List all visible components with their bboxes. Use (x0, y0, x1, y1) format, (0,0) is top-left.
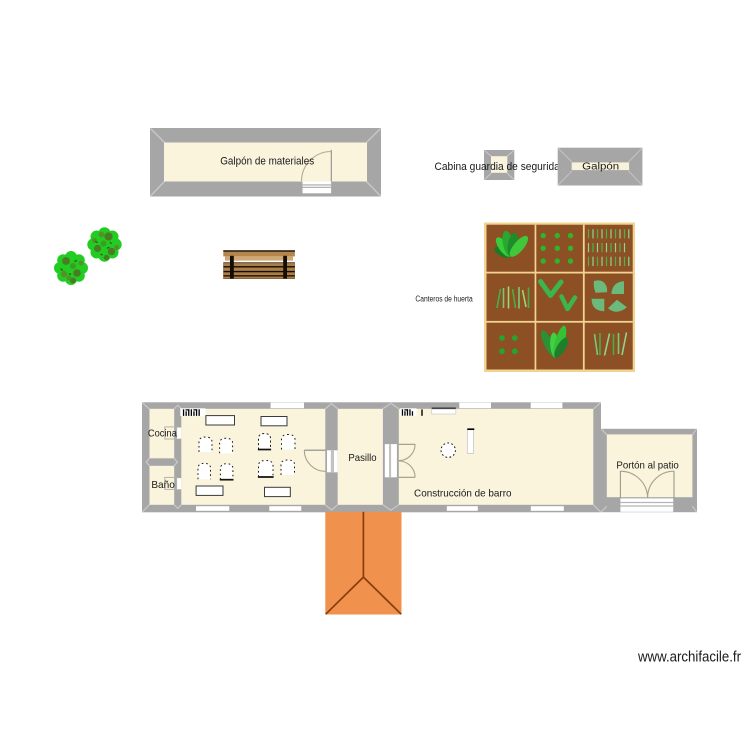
svg-text:Cocina: Cocina (148, 429, 177, 440)
svg-text:Canteros de huerta: Canteros de huerta (415, 295, 473, 304)
svg-text:Galpón de materiales: Galpón de materiales (220, 155, 314, 167)
svg-text:www.archifacile.fr: www.archifacile.fr (637, 648, 741, 665)
svg-text:Galpón: Galpón (582, 162, 619, 173)
svg-text:Construcción de barro: Construcción de barro (414, 489, 512, 500)
svg-text:Portón al patio: Portón al patio (616, 460, 679, 471)
svg-text:Cabina guardia de seguridad: Cabina guardia de seguridad (435, 161, 566, 173)
svg-text:Baño: Baño (151, 480, 175, 491)
svg-text:Pasillo: Pasillo (348, 453, 376, 464)
